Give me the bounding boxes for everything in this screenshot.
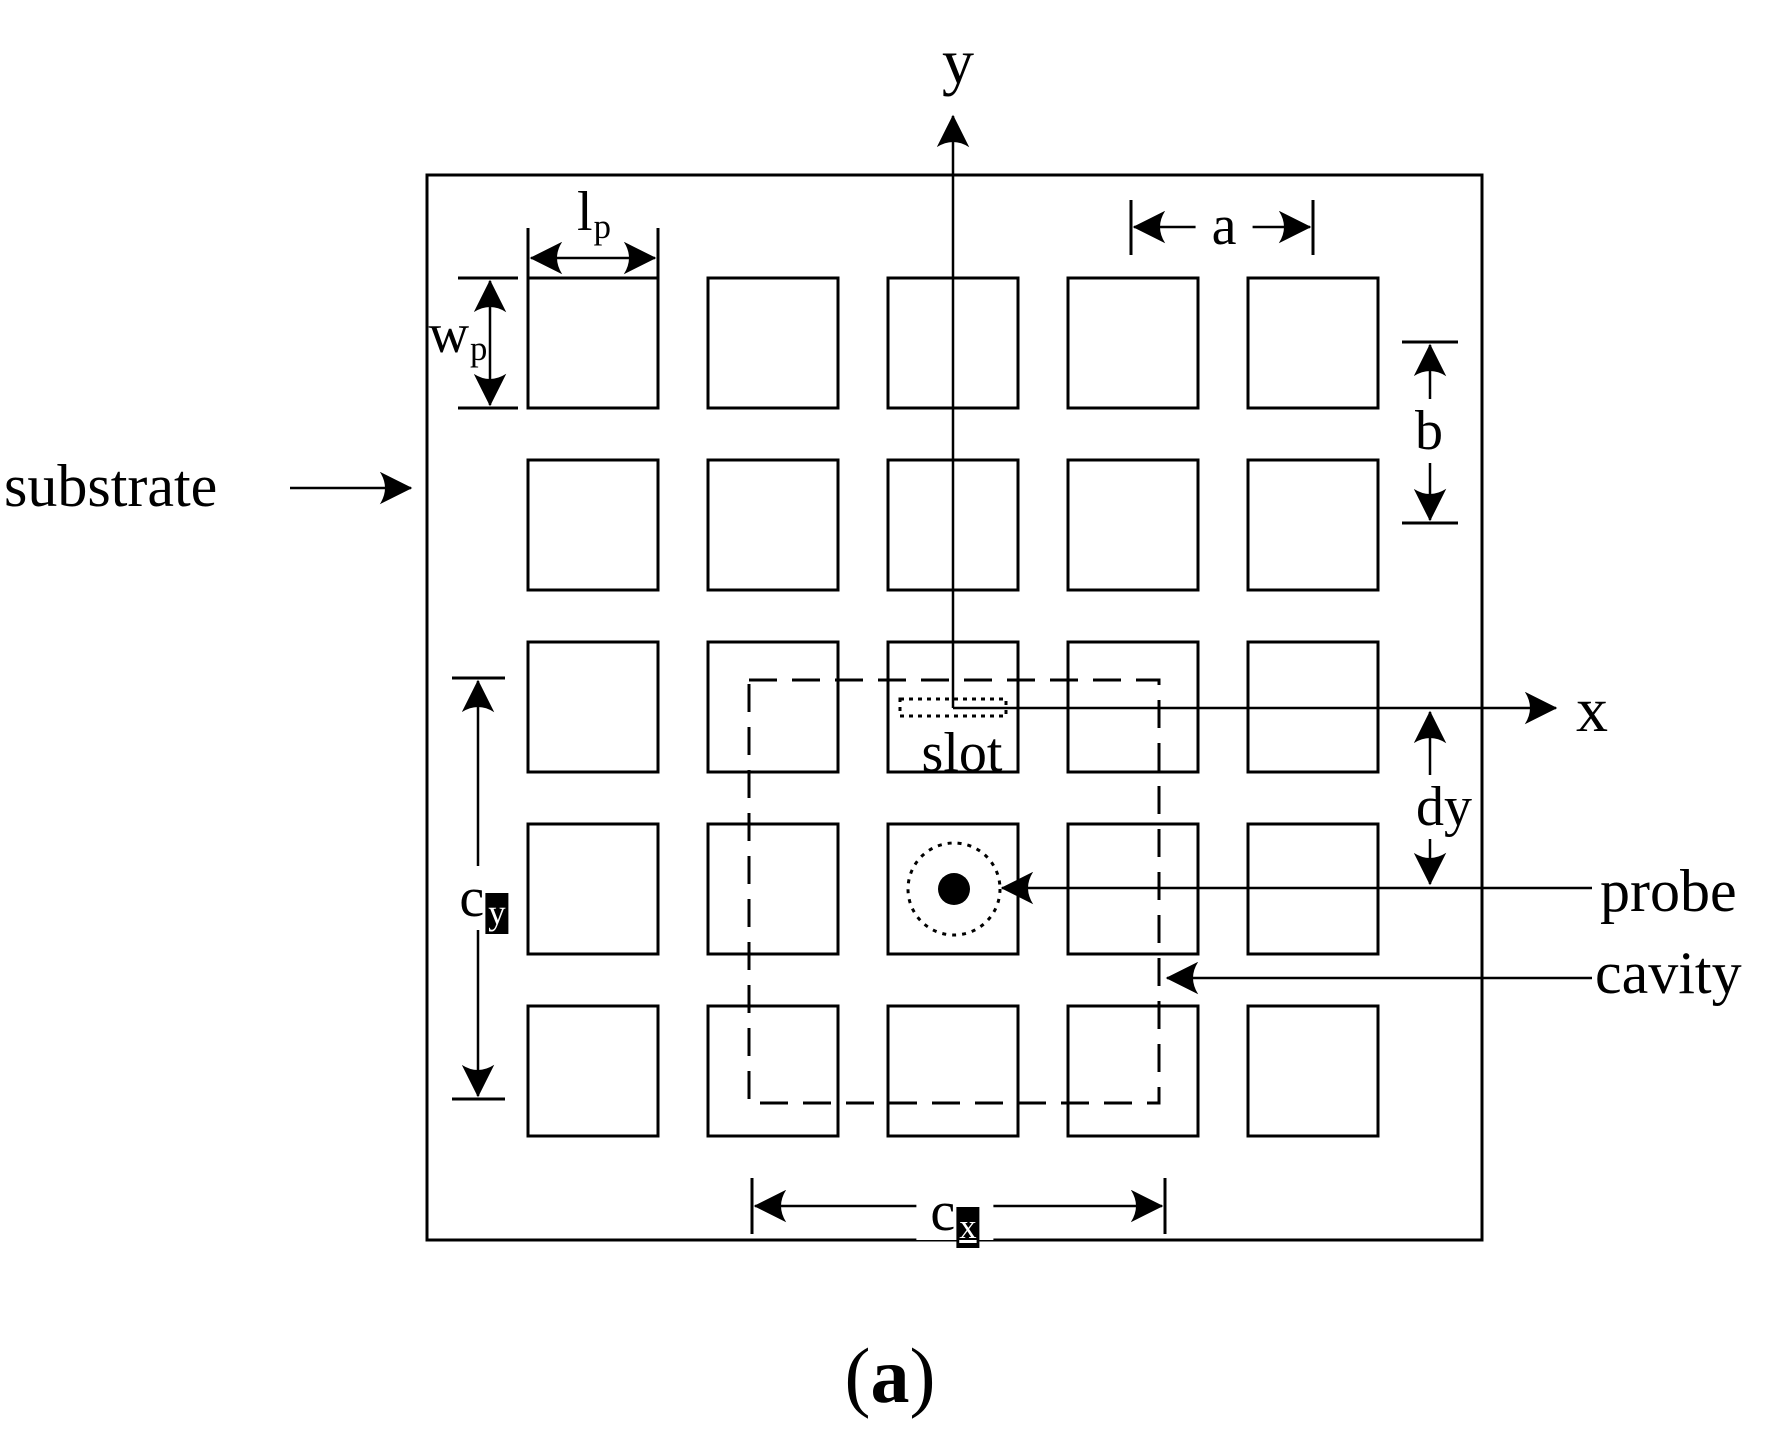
patch-rect: [1248, 460, 1378, 590]
diagram-linework: [0, 0, 1788, 1431]
substrate-label: substrate: [4, 456, 217, 516]
dim-label-lp-main: l: [577, 181, 593, 243]
patch-rect: [888, 1006, 1018, 1136]
dim-label-lp: lp: [577, 184, 611, 240]
y-axis-label: y: [942, 30, 974, 94]
slot-label: slot: [922, 725, 1003, 781]
caption-close-paren: ): [910, 1332, 936, 1419]
caption-open-paren: (: [845, 1332, 871, 1419]
patch-rect: [1248, 278, 1378, 408]
dim-label-lp-sub: p: [594, 207, 611, 246]
dim-label-wp-sub: p: [470, 329, 487, 368]
patch-rect: [528, 278, 658, 408]
dim-label-wp: wp: [429, 306, 488, 362]
patch-rect: [708, 460, 838, 590]
dim-label-cx-sub: x: [956, 1207, 979, 1248]
dim-label-wp-main: w: [429, 303, 469, 365]
patch-rect: [528, 1006, 658, 1136]
caption-letter: a: [871, 1332, 910, 1419]
probe-label: probe: [1600, 861, 1737, 921]
patch-rect: [708, 1006, 838, 1136]
figure-caption: (a): [845, 1337, 936, 1415]
x-axis-label: x: [1576, 678, 1608, 742]
dim-label-dy: dy: [1410, 775, 1478, 839]
patch-rect: [1068, 278, 1198, 408]
patch-rect: [1068, 1006, 1198, 1136]
cavity-label: cavity: [1595, 943, 1742, 1003]
dim-label-cy: cy: [453, 866, 514, 930]
patch-rect: [1068, 460, 1198, 590]
patch-rect: [708, 278, 838, 408]
patch-rect: [708, 824, 838, 954]
probe-dot: [938, 873, 970, 905]
patch-rect: [528, 824, 658, 954]
dim-label-a: a: [1196, 198, 1253, 254]
figure-patch-array-top-view: y x substrate slot probe cavity lp wp a …: [0, 0, 1788, 1431]
dim-label-cx-main: c: [930, 1181, 955, 1243]
dim-label-cy-sub: y: [485, 893, 508, 934]
patch-rect: [1248, 1006, 1378, 1136]
patch-rect: [528, 642, 658, 772]
dim-label-cy-main: c: [459, 867, 484, 929]
dim-label-b: b: [1407, 399, 1451, 463]
patch-rect: [708, 642, 838, 772]
dim-label-cx: cx: [916, 1184, 993, 1240]
patch-rect: [528, 460, 658, 590]
